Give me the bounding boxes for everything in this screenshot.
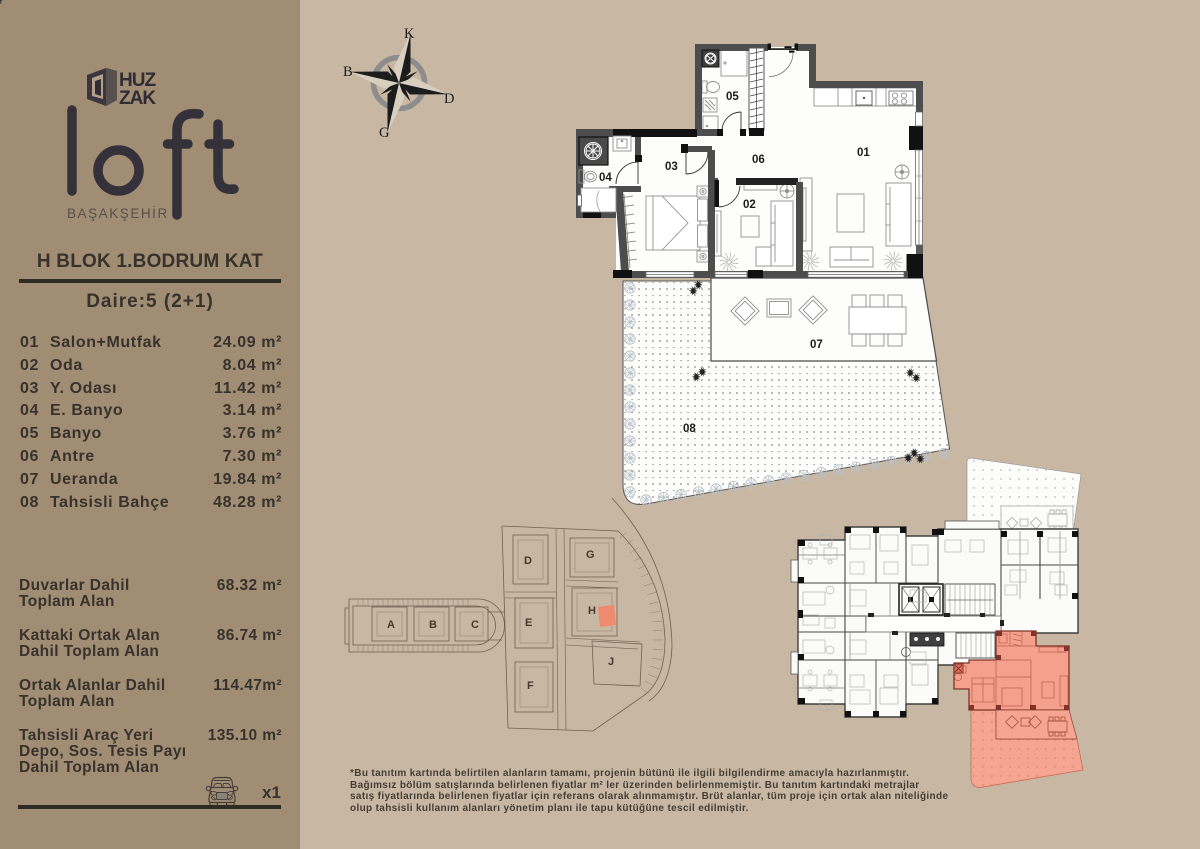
svg-text:C: C: [471, 619, 479, 631]
svg-text:04: 04: [599, 172, 612, 184]
svg-text:B: B: [343, 64, 353, 80]
svg-text:05: 05: [726, 91, 739, 103]
svg-text:G: G: [586, 549, 595, 561]
svg-text:D: D: [524, 555, 532, 567]
svg-text:BAŞAKŞEHİR: BAŞAKŞEHİR: [67, 206, 169, 221]
svg-text:E: E: [525, 617, 532, 629]
svg-text:03: 03: [665, 161, 678, 173]
svg-text:J: J: [608, 656, 614, 668]
svg-text:A: A: [387, 619, 395, 631]
svg-text:B: B: [429, 619, 437, 631]
svg-text:F: F: [527, 680, 534, 692]
svg-text:08: 08: [683, 423, 696, 435]
svg-text:ZAK: ZAK: [119, 88, 156, 109]
svg-text:D: D: [444, 91, 454, 107]
svg-text:H: H: [588, 605, 596, 617]
svg-text:K: K: [404, 26, 415, 42]
svg-text:06: 06: [752, 154, 765, 166]
svg-text:G: G: [379, 125, 390, 141]
svg-text:02: 02: [743, 199, 756, 211]
svg-text:01: 01: [857, 147, 870, 159]
svg-text:07: 07: [810, 339, 823, 351]
